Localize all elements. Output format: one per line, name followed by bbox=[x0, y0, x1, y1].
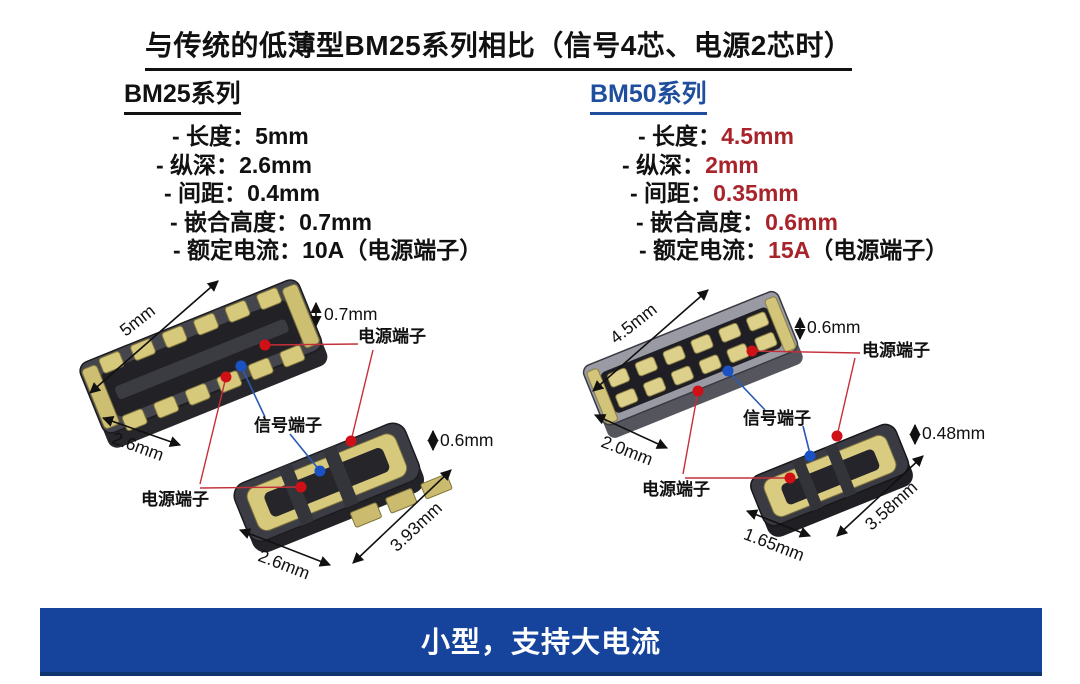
bm25-dim-plug-height: 0.6mm bbox=[440, 430, 493, 450]
bm25-dim-receptacle-length: 5mm bbox=[116, 300, 159, 340]
bm25-heading: BM25系列 bbox=[124, 74, 241, 115]
bm50-dim-receptacle-depth: 2.0mm bbox=[599, 431, 656, 469]
bm50-spec-pitch: - 间距：0.35mm bbox=[578, 179, 978, 208]
page-title: 与传统的低薄型BM25系列相比（信号4芯、电源2芯时） bbox=[145, 24, 852, 71]
bm50-spec-panel: BM50系列 - 长度：4.5mm - 纵深：2mm - 间距：0.35mm -… bbox=[578, 74, 978, 265]
bm50-dim-plug-height: 0.48mm bbox=[922, 423, 985, 443]
bm25-spec-pitch: - 间距：0.4mm bbox=[112, 179, 482, 208]
bm50-power-terminal-label-bottom: 电源端子 bbox=[642, 479, 710, 499]
bm25-signal-terminal-label: 信号端子 bbox=[254, 415, 322, 435]
bm25-connector-diagram: 5mm 0.7mm 2.6mm 0.6mm 3.93mm 2.6mm 电源端子 … bbox=[28, 278, 533, 593]
slide: 与传统的低薄型BM25系列相比（信号4芯、电源2芯时） BM25系列 - 长度：… bbox=[0, 0, 1080, 684]
bm25-spec-length: - 长度：5mm bbox=[112, 122, 482, 151]
bottom-banner: 小型，支持大电流 bbox=[40, 608, 1042, 676]
bm25-spec-depth: - 纵深：2.6mm bbox=[112, 151, 482, 180]
bm50-dim-receptacle-height: 0.6mm bbox=[807, 317, 860, 337]
bm50-spec-mating-height: - 嵌合高度：0.6mm bbox=[578, 208, 978, 237]
bm50-heading: BM50系列 bbox=[590, 74, 707, 115]
bm50-plug-3d bbox=[747, 421, 916, 541]
bm50-spec-rated-current: - 额定电流：15A（电源端子） bbox=[578, 236, 978, 265]
bm50-spec-length: - 长度：4.5mm bbox=[578, 122, 978, 151]
bm25-spec-mating-height: - 嵌合高度：0.7mm bbox=[112, 208, 482, 237]
bm50-spec-depth: - 纵深：2mm bbox=[578, 151, 978, 180]
bm25-dim-receptacle-height: 0.7mm bbox=[324, 304, 377, 324]
bm25-spec-rated-current: - 额定电流：10A（电源端子） bbox=[112, 236, 482, 265]
bm50-connector-diagram: 4.5mm 0.6mm 2.0mm 0.48mm 3.58mm 1.65mm 电… bbox=[555, 278, 1060, 593]
bm25-spec-list: - 长度：5mm - 纵深：2.6mm - 间距：0.4mm - 嵌合高度：0.… bbox=[112, 122, 482, 265]
bm50-power-terminal-label-top: 电源端子 bbox=[862, 340, 930, 360]
bm25-power-terminal-label-bottom: 电源端子 bbox=[141, 489, 209, 509]
bm25-spec-panel: BM25系列 - 长度：5mm - 纵深：2.6mm - 间距：0.4mm - … bbox=[112, 74, 482, 265]
bm25-dim-plug-width: 2.6mm bbox=[256, 545, 313, 583]
banner-text: 小型，支持大电流 bbox=[421, 619, 661, 661]
bm50-spec-list: - 长度：4.5mm - 纵深：2mm - 间距：0.35mm - 嵌合高度：0… bbox=[578, 122, 978, 265]
bm25-power-terminal-label-top: 电源端子 bbox=[358, 326, 426, 346]
bm50-signal-terminal-label: 信号端子 bbox=[743, 408, 811, 428]
